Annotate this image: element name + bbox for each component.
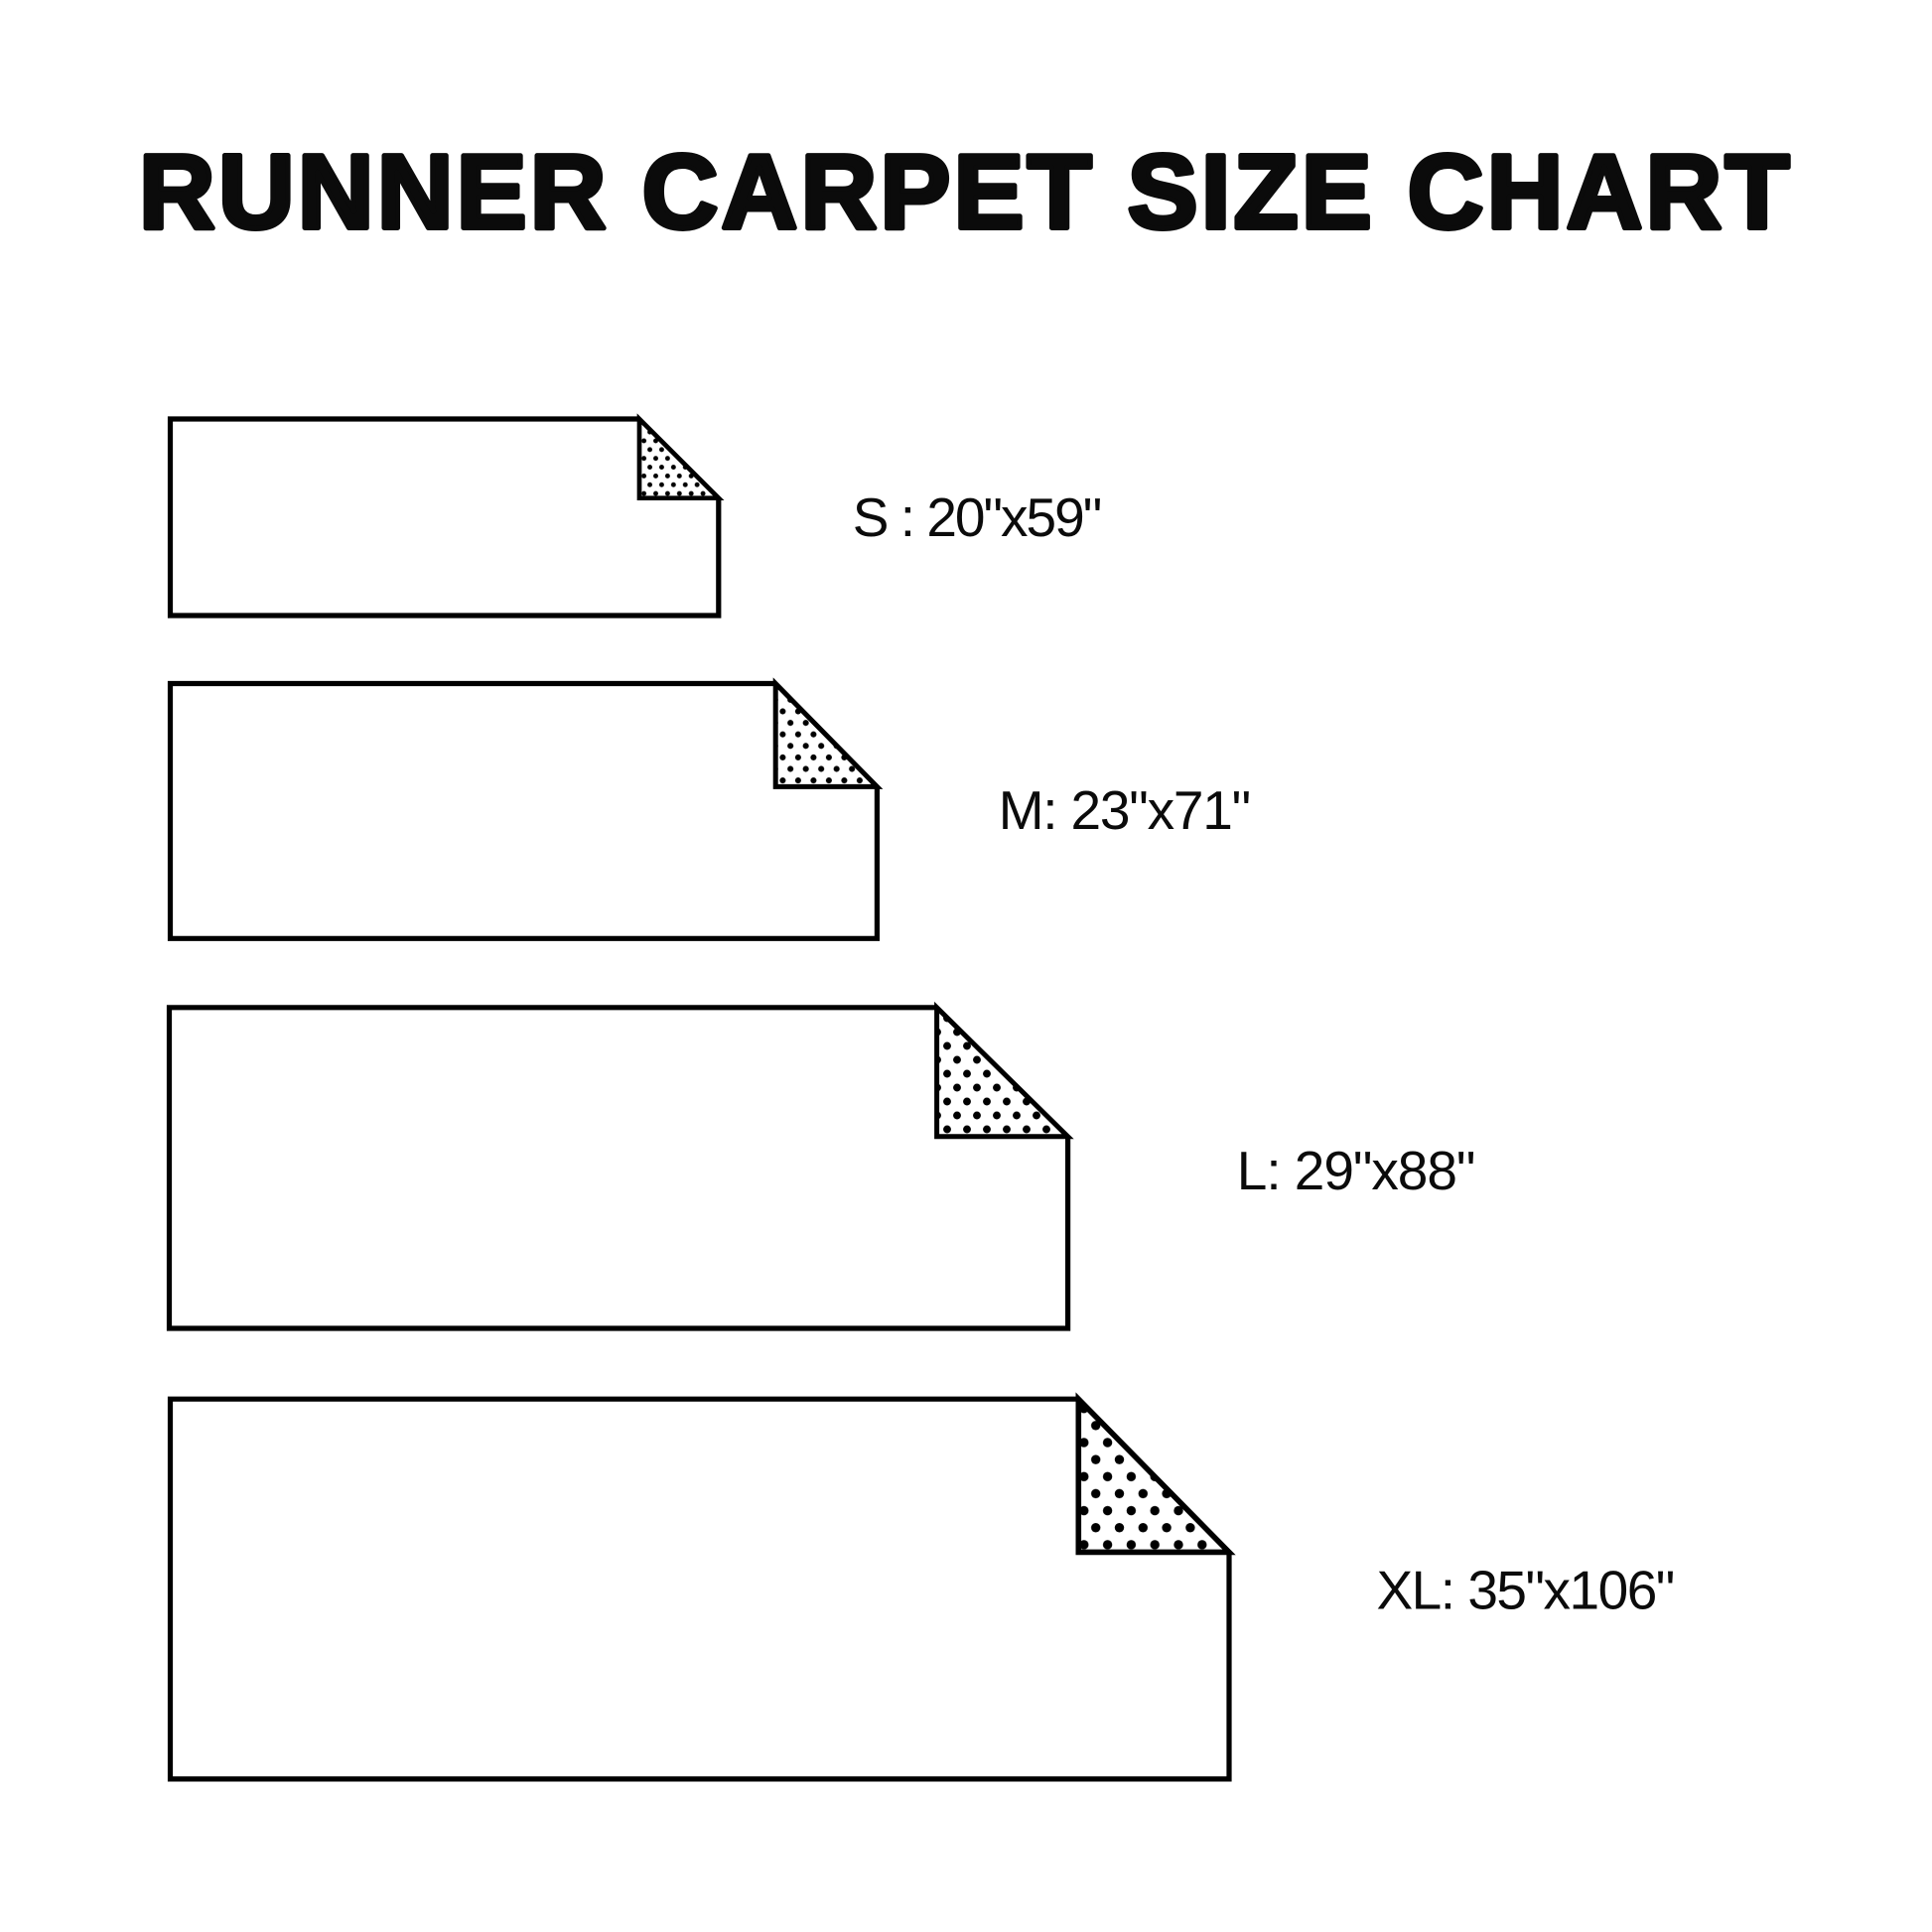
- svg-text:RUNNER CARPET SIZE CHART: RUNNER CARPET SIZE CHART: [139, 134, 1793, 251]
- svg-text:XL: 35"x106": XL: 35"x106": [1377, 1560, 1674, 1621]
- svg-text:S : 20"x59": S : 20"x59": [853, 486, 1101, 548]
- svg-text:L: 29"x88": L: 29"x88": [1237, 1140, 1475, 1201]
- svg-text:M: 23"x71": M: 23"x71": [999, 779, 1250, 841]
